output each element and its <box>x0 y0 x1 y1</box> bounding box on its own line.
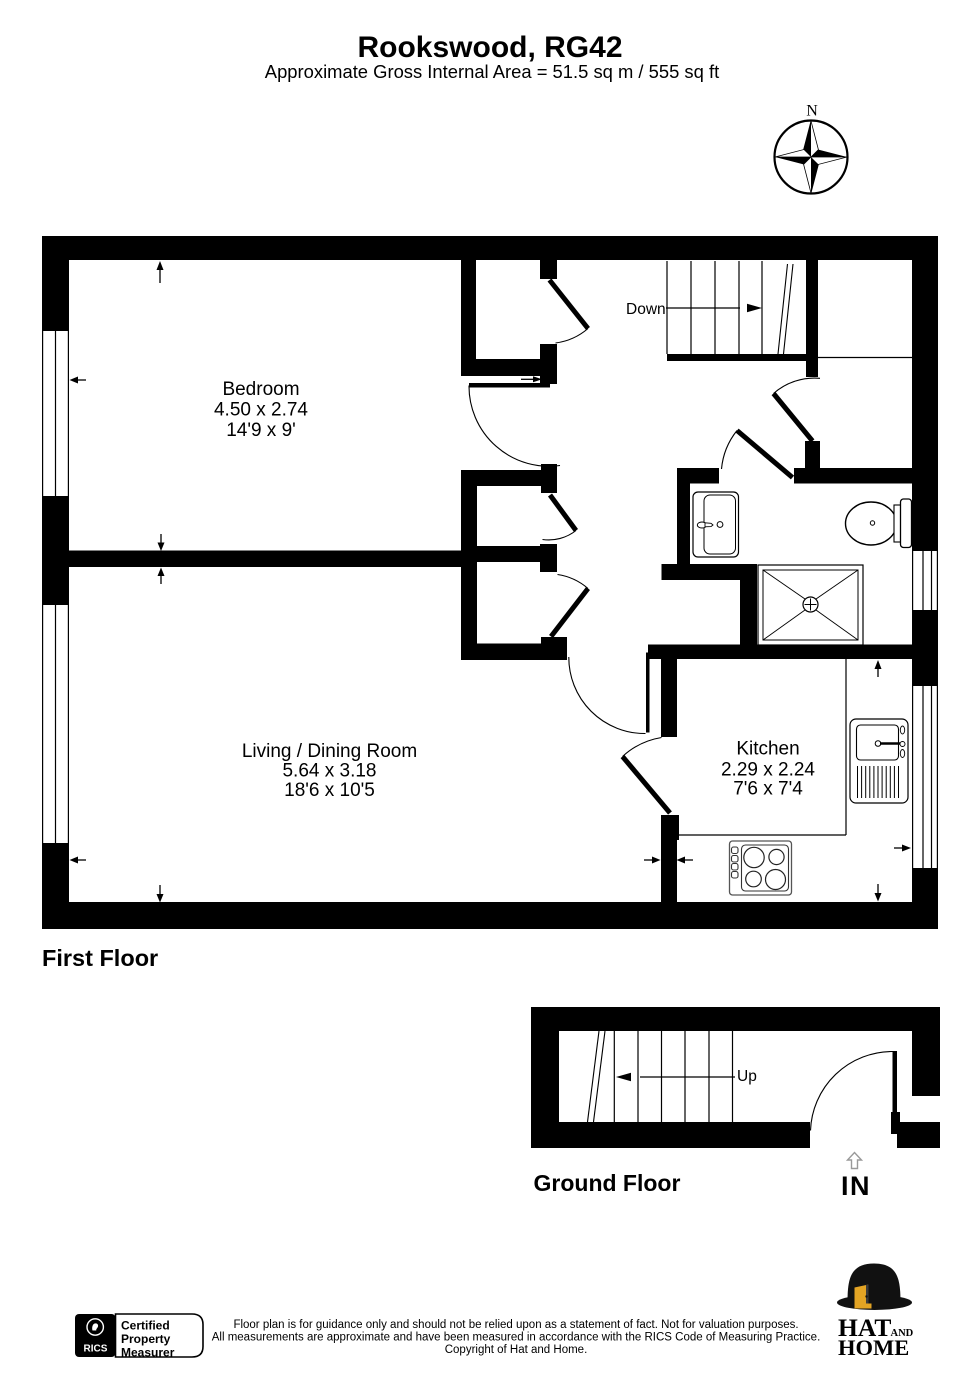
svg-text:RICS: RICS <box>84 1344 108 1355</box>
svg-text:Approximate Gross Internal Are: Approximate Gross Internal Area = 51.5 s… <box>265 61 719 82</box>
svg-text:All measurements are approxima: All measurements are approximate and hav… <box>212 1332 821 1344</box>
svg-text:Living / Dining Room: Living / Dining Room <box>242 741 417 762</box>
svg-text:IN: IN <box>841 1171 871 1201</box>
svg-text:2.29 x 2.24: 2.29 x 2.24 <box>721 760 815 781</box>
svg-text:Floor plan is for guidance onl: Floor plan is for guidance only and shou… <box>233 1319 798 1331</box>
svg-text:Ground Floor: Ground Floor <box>534 1170 681 1196</box>
svg-text:Copyright of Hat and Home.: Copyright of Hat and Home. <box>445 1344 588 1356</box>
svg-text:Kitchen: Kitchen <box>736 739 799 760</box>
svg-text:Bedroom: Bedroom <box>222 379 299 400</box>
svg-text:Measurer: Measurer <box>121 1346 175 1360</box>
svg-text:HOME: HOME <box>838 1335 909 1360</box>
svg-text:Down: Down <box>626 301 666 318</box>
svg-text:7'6 x 7'4: 7'6 x 7'4 <box>733 779 803 800</box>
svg-text:First Floor: First Floor <box>42 945 158 971</box>
svg-text:5.64 x 3.18: 5.64 x 3.18 <box>282 761 376 782</box>
svg-text:18'6 x 10'5: 18'6 x 10'5 <box>284 780 375 801</box>
svg-text:4.50 x 2.74: 4.50 x 2.74 <box>214 400 308 421</box>
svg-text:14'9 x 9': 14'9 x 9' <box>226 420 296 441</box>
svg-text:Up: Up <box>737 1068 757 1085</box>
svg-text:N: N <box>806 103 818 120</box>
svg-text:Property: Property <box>121 1332 171 1346</box>
svg-text:Rookswood, RG42: Rookswood, RG42 <box>357 31 622 64</box>
svg-text:Certified: Certified <box>121 1319 170 1333</box>
